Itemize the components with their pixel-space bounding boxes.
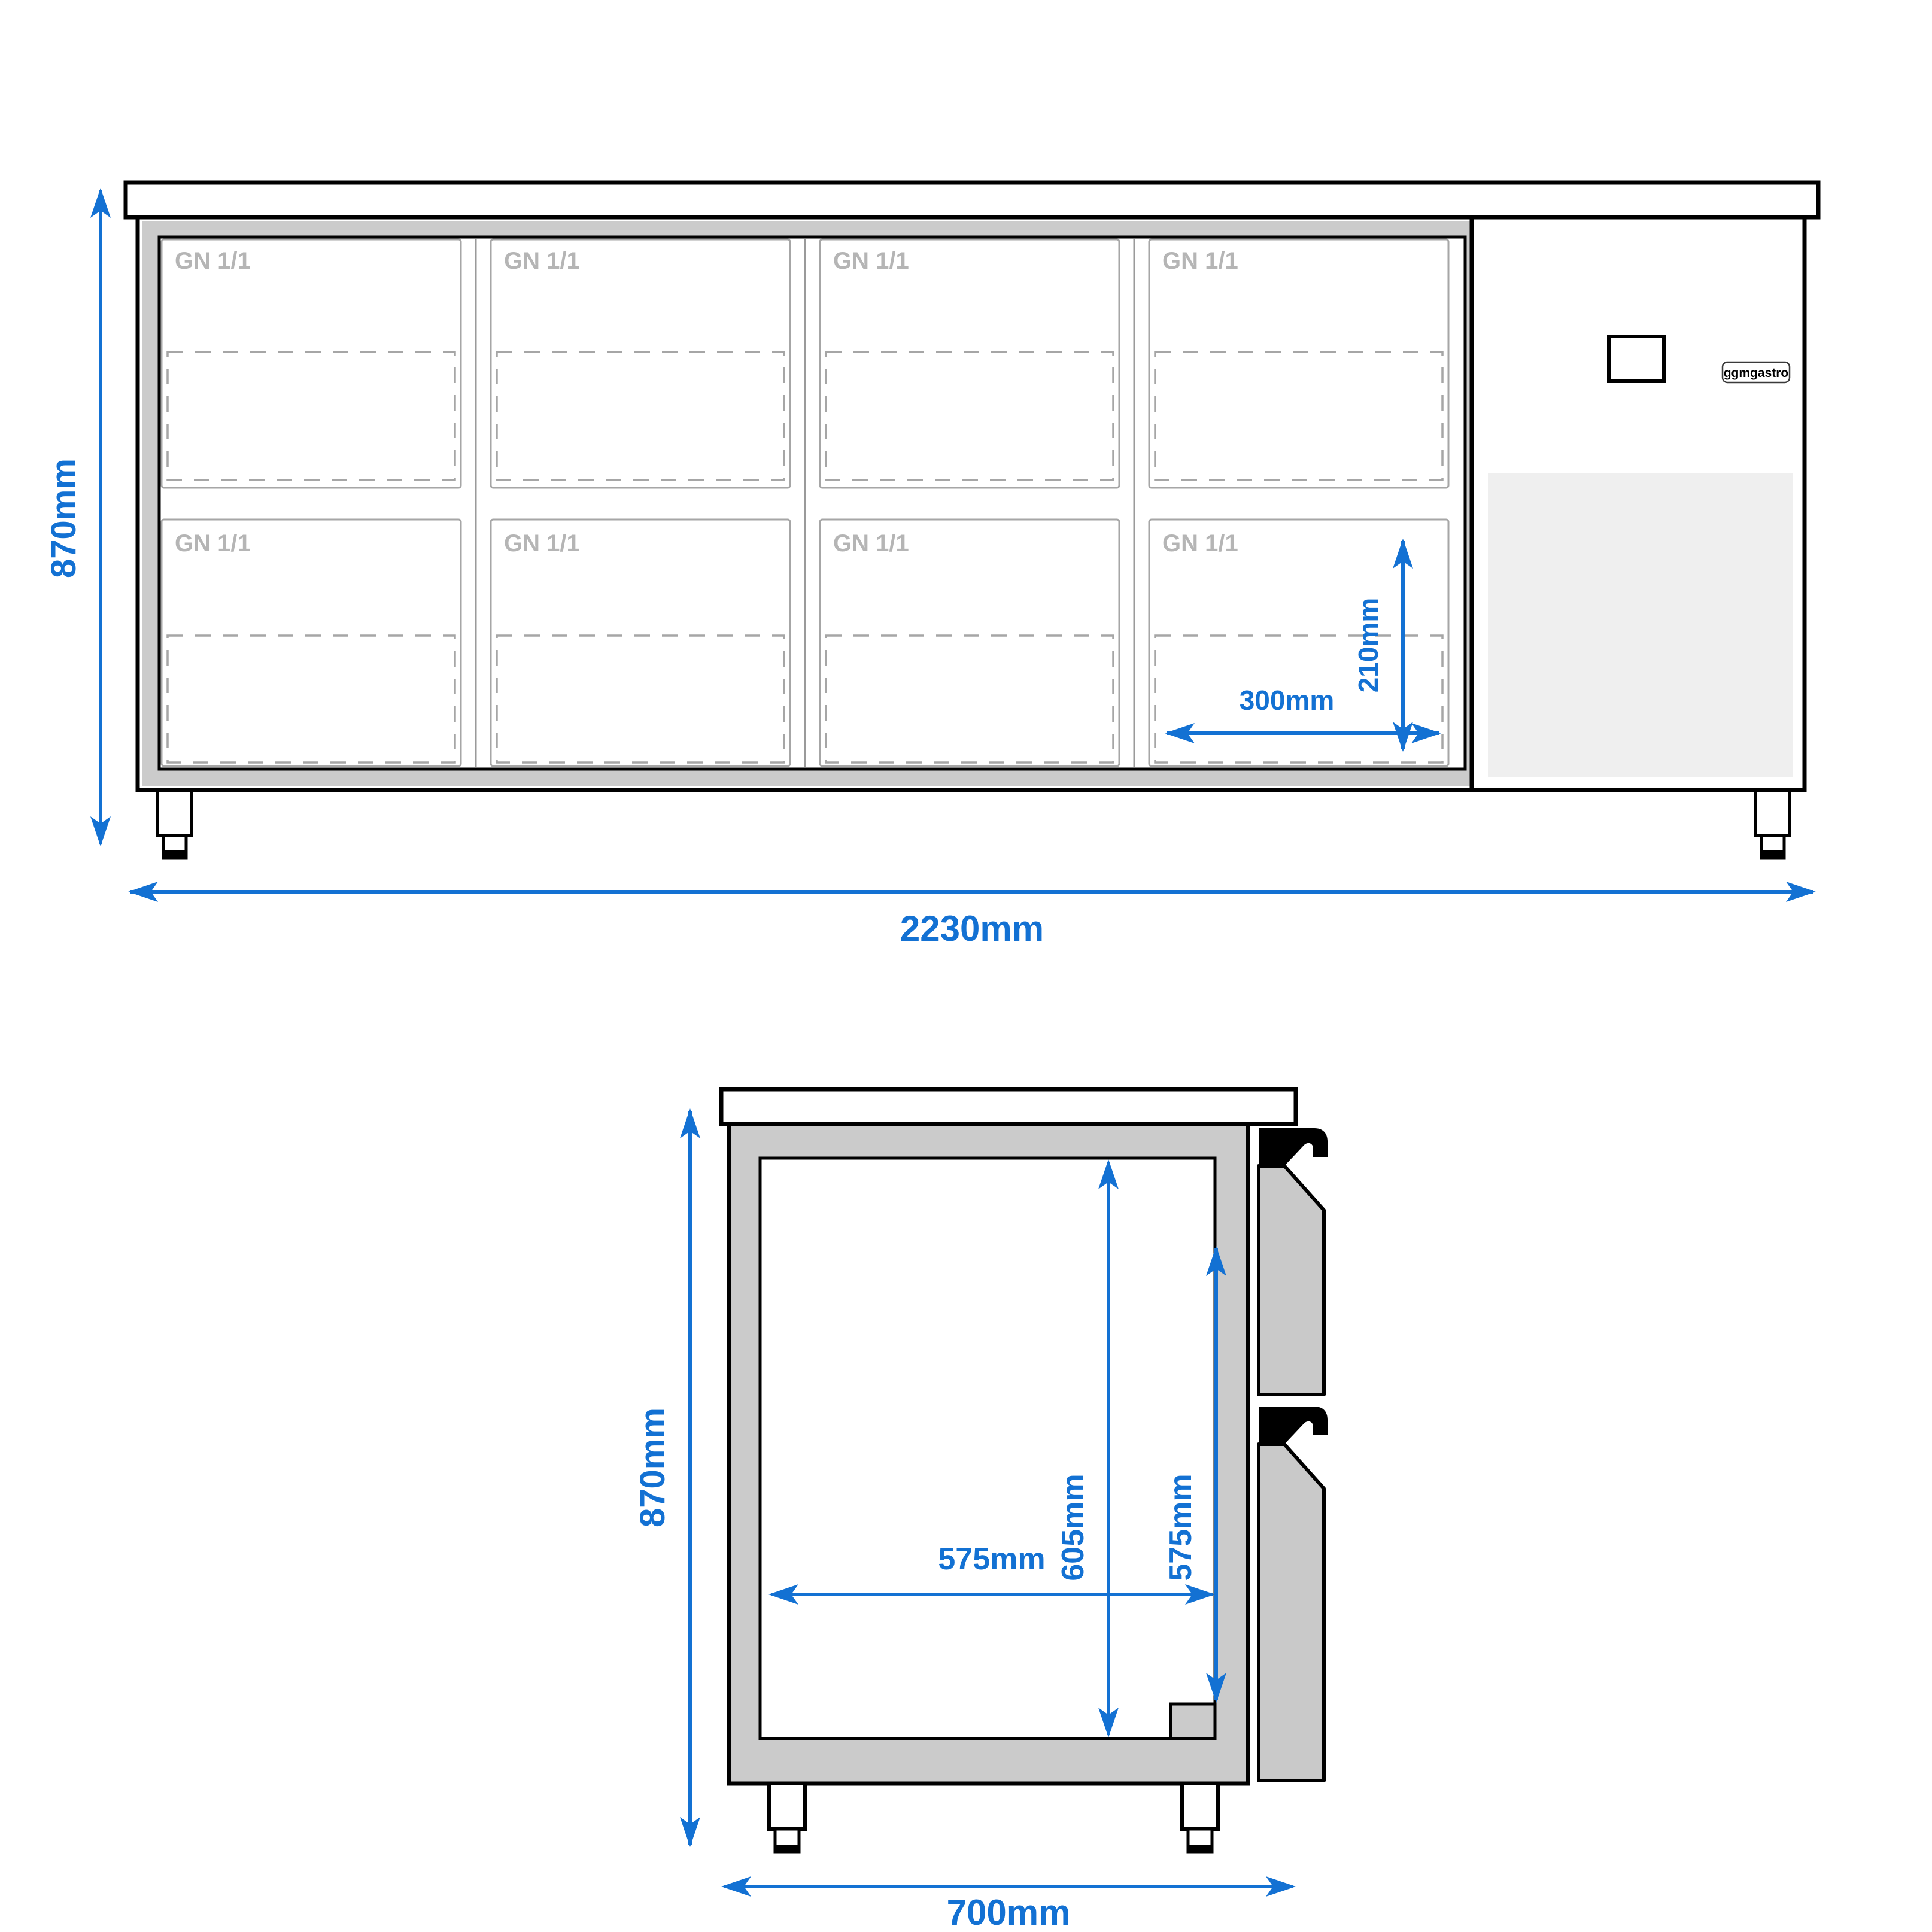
control-box [1609,336,1664,381]
front-countertop [126,183,1818,217]
front-width-label: 2230mm [900,909,1044,949]
front-right-foot [1755,790,1790,858]
side-height-label: 870mm [633,1408,672,1527]
gn-compartment: GN 1/1 [820,520,1119,766]
gn-label: GN 1/1 [175,530,251,557]
front-left-foot [157,790,192,858]
upper-drawer-profile [1259,1128,1328,1395]
gn-compartment: GN 1/1 [1149,239,1448,488]
gn-label: GN 1/1 [504,530,580,557]
side-height-dimension: 870mm [633,1111,690,1845]
gn-compartment: GN 1/1 [491,520,790,766]
drawer-height-label: 575mm [1164,1474,1198,1581]
side-depth-label: 700mm [947,1892,1071,1932]
side-inner [760,1158,1215,1739]
front-height-dimension: 870mm [44,190,101,844]
front-height-label: 870mm [44,458,83,578]
gn-compartment: GN 1/1 [162,239,461,488]
lower-drawer-profile [1259,1407,1328,1781]
pan-width-label: 300mm [1240,685,1335,716]
brand-label: ggmgastro [1724,366,1789,380]
side-view: 870mm 605mm 575mm 575mm 700mm [633,1089,1328,1932]
gn-label: GN 1/1 [504,248,580,274]
gn-label: GN 1/1 [175,248,251,274]
gn-label: GN 1/1 [833,248,909,274]
condenser-panel [1488,473,1793,777]
side-right-foot [1182,1784,1218,1852]
front-view: GN 1/1GN 1/1GN 1/1GN 1/1GN 1/1GN 1/1GN 1… [44,183,1818,949]
front-width-dimension: 2230mm [130,892,1813,949]
side-left-foot [769,1784,805,1852]
gn-compartment: GN 1/1 [820,239,1119,488]
side-step [1171,1704,1215,1739]
inner-depth-label: 575mm [938,1542,1045,1576]
gn-compartment: GN 1/1 [162,520,461,766]
side-countertop [721,1089,1296,1124]
gn-label: GN 1/1 [1162,530,1238,557]
gn-compartment: GN 1/1 [491,239,790,488]
technical-drawing: GN 1/1GN 1/1GN 1/1GN 1/1GN 1/1GN 1/1GN 1… [0,0,1932,1932]
gn-label: GN 1/1 [1162,248,1238,274]
inner-height-label: 605mm [1056,1474,1090,1581]
pan-height-label: 210mm [1353,598,1384,693]
side-depth-dimension: 700mm [724,1887,1293,1932]
brand-badge: ggmgastro [1723,362,1790,382]
gn-label: GN 1/1 [833,530,909,557]
